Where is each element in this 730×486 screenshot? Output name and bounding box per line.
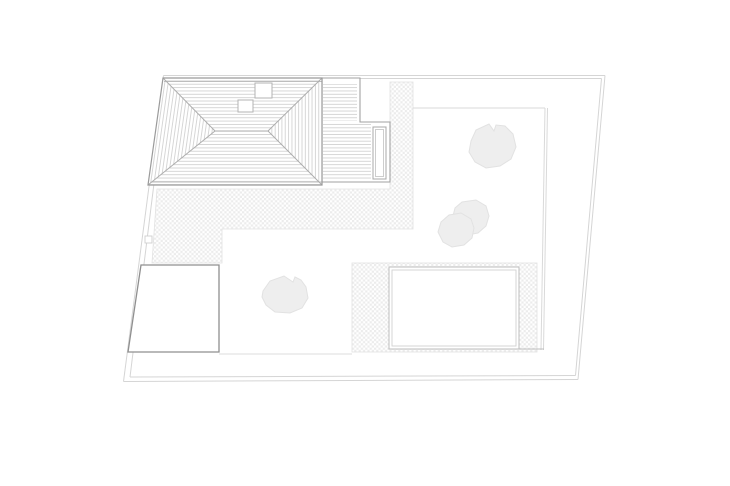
hipped-house-roof [148,78,322,185]
deck-boards-upper [323,84,357,121]
tree-double [438,200,489,247]
boundary-gate-jog [145,236,152,243]
boundary-bottom-outer-line [124,380,579,382]
roof-skylight-small [238,100,253,112]
tree-large-canopy [469,124,516,168]
planter-outer [373,127,386,179]
boundary-right-inner-line [576,79,602,376]
roof-plan-canvas [0,0,730,486]
deck-boards-lower [323,122,371,179]
site-plan-drawing [0,0,730,486]
garage-outline [128,265,219,352]
garage [128,265,219,352]
boundary-right-outer-line [578,76,605,380]
tree-large [469,124,516,168]
shrub [262,276,308,313]
shrub-canopy [262,276,308,313]
boundary-bottom-inner-line [130,376,576,378]
pool-outer-border [389,267,519,349]
deck-planter [373,127,386,179]
roof-skylight-large [255,83,272,98]
tree-double-lower-canopy [438,213,474,247]
